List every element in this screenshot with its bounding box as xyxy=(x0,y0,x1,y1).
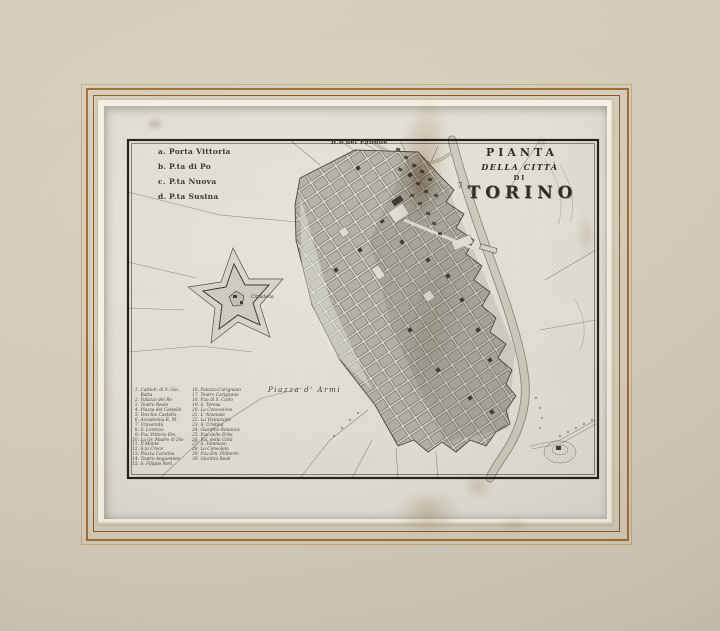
gate-label: P.ta Susina xyxy=(169,192,219,201)
gate-key: b. xyxy=(158,159,169,174)
gate-legend-item: d.P.ta Susina xyxy=(158,189,231,204)
index-label: S. Filippo Neri xyxy=(141,463,173,468)
gate-label: Porta Vittoria xyxy=(169,147,231,156)
gate-legend: a.Porta Vittoria b.P.ta di Po c.P.ta Nuo… xyxy=(158,144,231,204)
index-column-right: 16.Palazzo Carignano 17.Teatro Carignano… xyxy=(191,389,244,468)
title-line-pianta: PIANTA xyxy=(462,146,578,159)
title-line-torino: TORINO xyxy=(462,183,578,203)
gate-key: a. xyxy=(158,144,169,159)
index-item: 30.Giardini Reali xyxy=(191,458,244,463)
index-number: 30. xyxy=(191,458,201,463)
index-label: Giardini Reali xyxy=(201,458,231,463)
title-block: PIANTA DELLA CITTÀ DI TORINO xyxy=(462,146,578,203)
gate-legend-item: b.P.ta di Po xyxy=(158,159,231,174)
gate-legend-item: a.Porta Vittoria xyxy=(158,144,231,159)
index-column-left: 1.Cattedr. di S. Gio. Batta 2.Palazzo de… xyxy=(131,389,184,468)
gate-key: c. xyxy=(158,174,169,189)
framed-map-photo: PIANTA DELLA CITTÀ DI TORINO a.Porta Vit… xyxy=(0,0,720,631)
index-number: 15. xyxy=(131,463,141,468)
label-cittadella: Cittadella xyxy=(251,295,274,300)
capuchin-hill xyxy=(544,441,576,463)
label-piazza-armi: Piazza d' Armi xyxy=(268,386,341,394)
gate-key: d. xyxy=(158,189,169,204)
title-line-di: DI xyxy=(462,174,578,182)
gate-legend-item: c.P.ta Nuova xyxy=(158,174,231,189)
title-line-della-citta: DELLA CITTÀ xyxy=(462,162,578,172)
index-item: 15.S. Filippo Neri xyxy=(131,463,184,468)
gate-label: P.ta Nuova xyxy=(169,177,216,186)
label-borgo-pallone: B.o del Pallone xyxy=(331,139,388,146)
index-legend: 1.Cattedr. di S. Gio. Batta 2.Palazzo de… xyxy=(131,389,244,468)
gate-label: P.ta di Po xyxy=(169,162,211,171)
